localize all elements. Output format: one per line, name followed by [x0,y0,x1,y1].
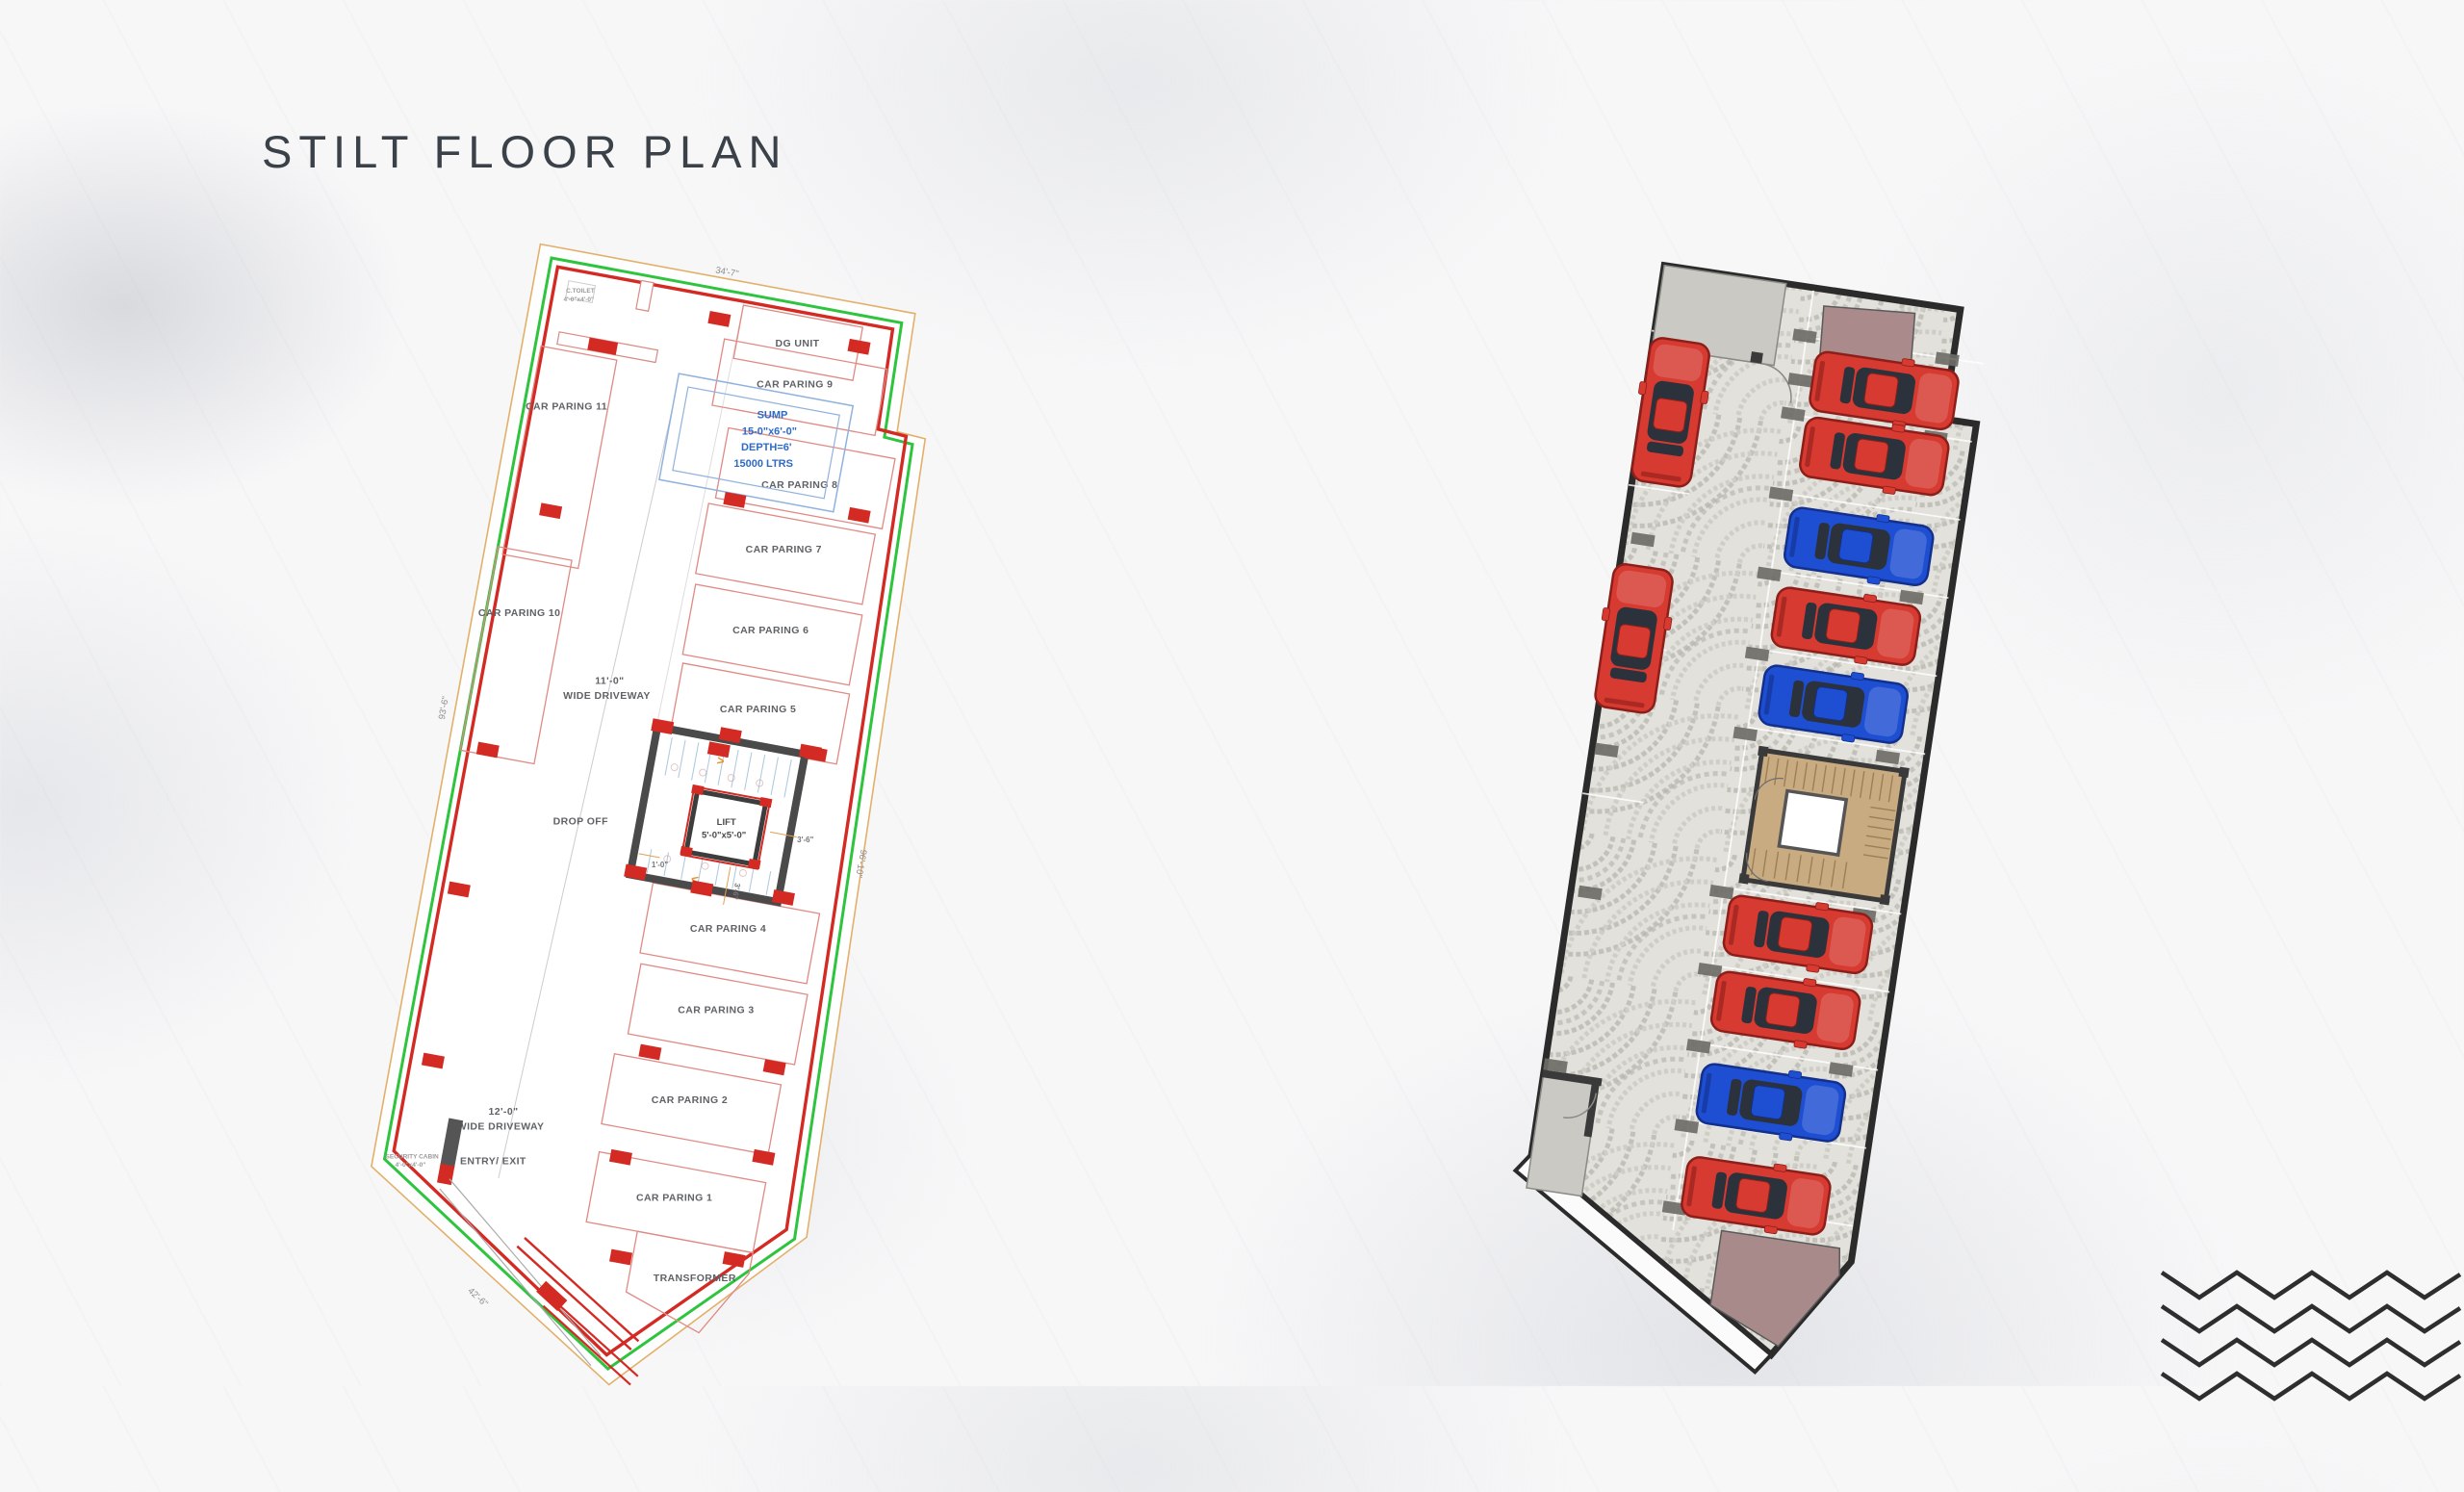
driveway-lower-label: WIDE DRIVEWAY [457,1121,545,1133]
sump-line4: 15000 LTRS [733,458,793,470]
page-title: STILT FLOOR PLAN [262,125,787,178]
entry-exit-label: ENTRY/ EXIT [460,1156,526,1168]
zigzag-row [2162,1374,2460,1399]
zigzag-logo [2158,1267,2464,1386]
zigzag-row [2162,1340,2460,1365]
c-toilet-size: 4'-0"x4'-0" [563,296,594,303]
stall-label-10: CAR PARING 10 [478,607,561,619]
sump-line1: SUMP [757,410,788,422]
stall-label-9: CAR PARING 9 [757,378,833,390]
stall-label-7: CAR PARING 7 [746,544,822,555]
zigzag-row [2162,1306,2460,1331]
sump-line3: DEPTH=6' [741,442,792,453]
lift-size: 5'-0"x5'-0" [702,831,746,841]
lift-dim-left: 1'-0" [652,861,668,869]
dim-left: 93'-6" [437,696,451,721]
drop-off-label: DROP OFF [553,815,608,827]
stilt-floor-plan-cad-drawing: C.TOILET 4'-0"x4'-0" DG UNIT CAR PARING … [341,258,1081,1492]
stair-lift-core-render [1738,746,1910,906]
stilt-floor-plan-render [1496,260,2041,1421]
sump-line2: 15-0"x6'-0" [742,425,797,437]
dg-unit-label: DG UNIT [776,338,820,349]
driveway-upper-width: 11'-0" [595,675,624,686]
lift-dim-right: 3'-6" [797,836,813,844]
stall-label-5: CAR PARING 5 [720,704,796,715]
security-cabin-label: SECURITY CABIN [386,1153,439,1160]
stall-label-11: CAR PARING 11 [526,400,607,412]
security-cabin-size: 4'-0"x4'-0" [396,1162,426,1169]
stall-label-1: CAR PARING 1 [636,1193,712,1204]
stall-label-2: CAR PARING 2 [652,1094,728,1106]
zigzag-row [2162,1273,2460,1298]
driveway-upper-label: WIDE DRIVEWAY [563,690,651,702]
lift-label: LIFT [717,817,736,828]
stall-label-3: CAR PARING 3 [678,1004,754,1016]
driveway-lower-width: 12'-0" [489,1106,519,1118]
transformer-label: TRANSFORMER [654,1273,736,1284]
stall-label-6: CAR PARING 6 [732,625,808,636]
stall-label-4: CAR PARING 4 [690,923,766,935]
c-toilet-label: C.TOILET [566,288,595,295]
dim-bottom: 42'-6" [466,1286,490,1309]
